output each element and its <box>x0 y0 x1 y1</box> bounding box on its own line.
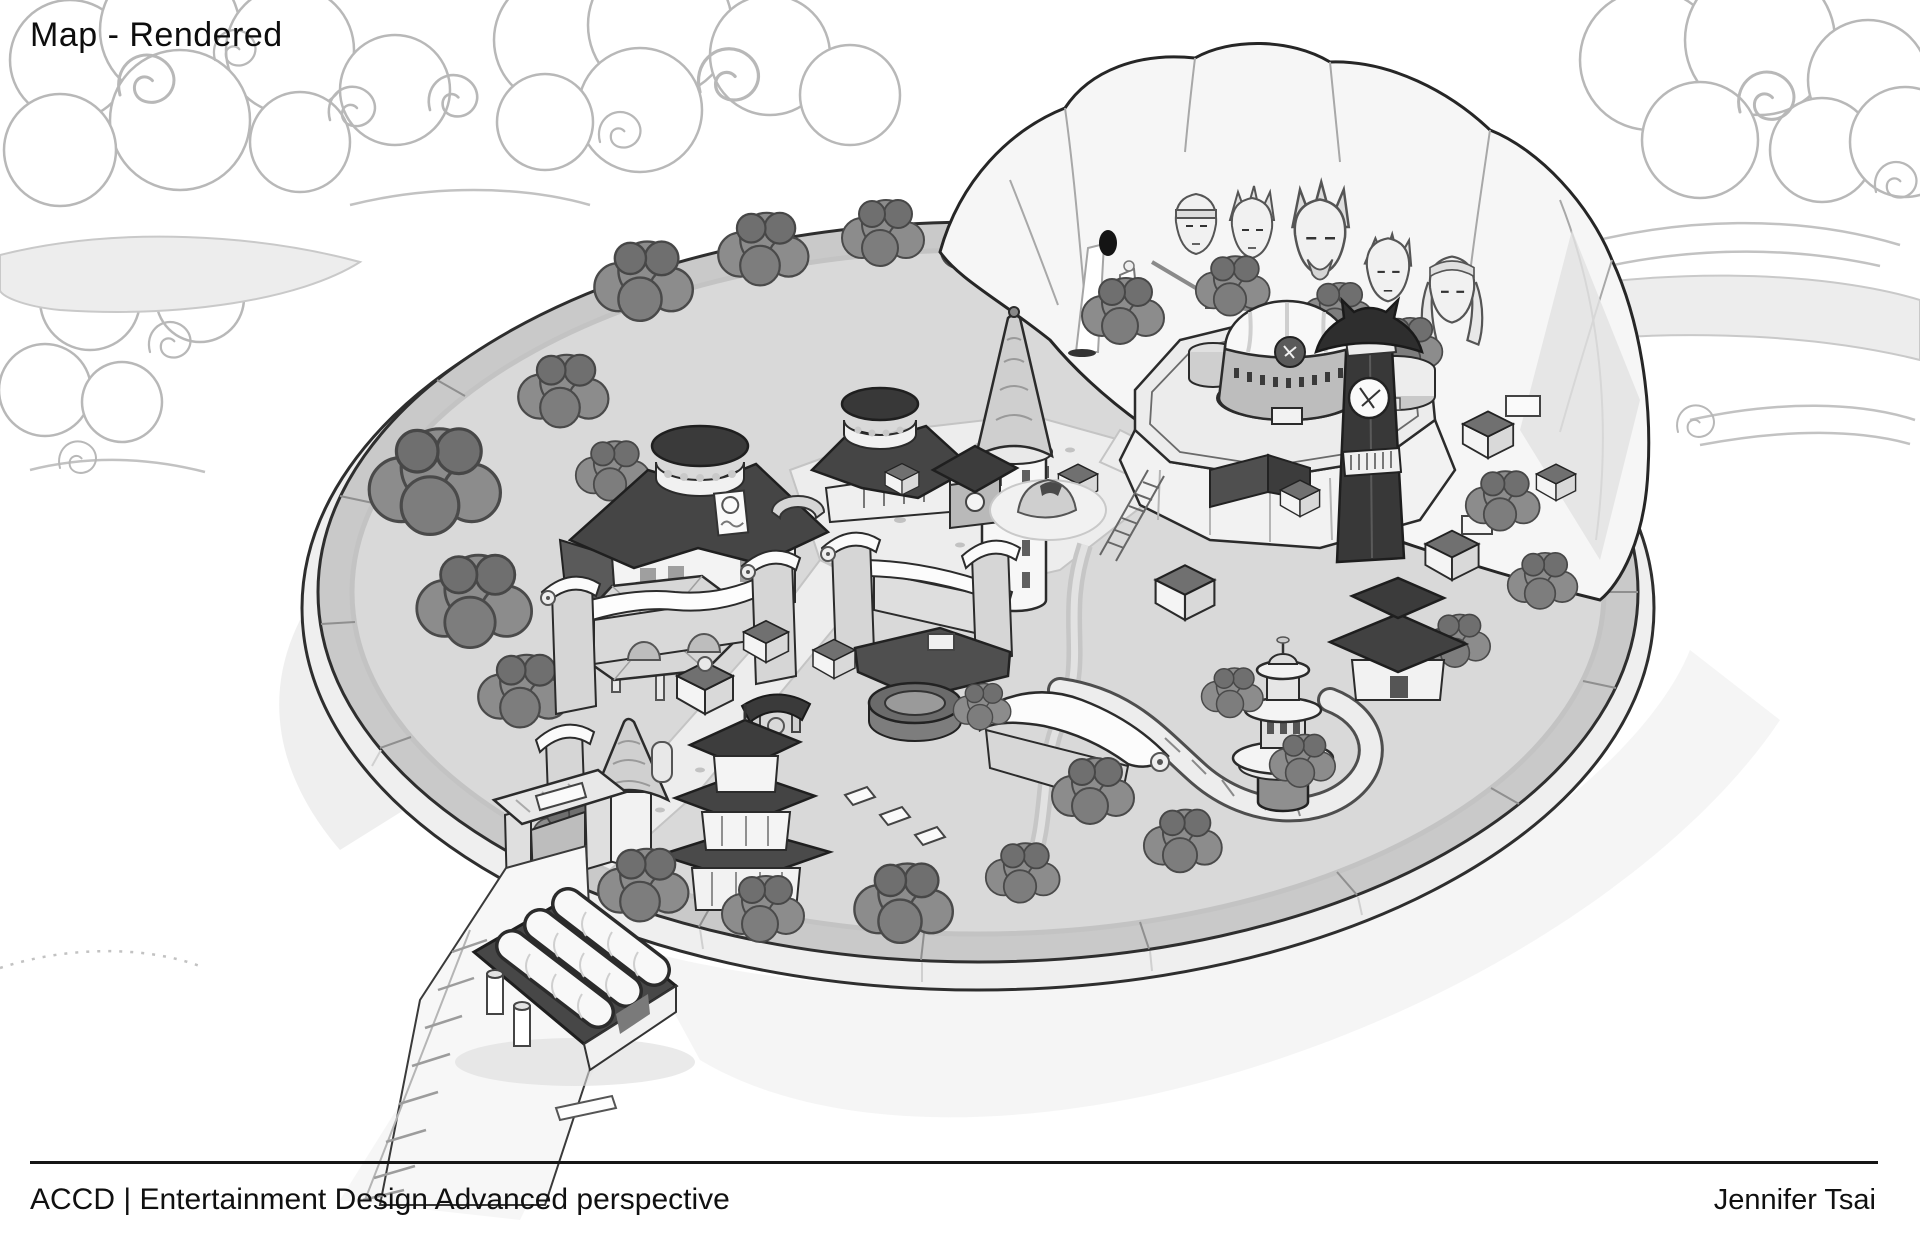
map-illustration <box>0 0 1920 1242</box>
artboard: Map - Rendered ACCD | Entertainment Desi… <box>0 0 1920 1242</box>
boat <box>1068 349 1096 357</box>
page-title: Map - Rendered <box>30 16 283 55</box>
footer-divider <box>30 1161 1878 1164</box>
cave-opening <box>1099 230 1117 256</box>
footer-artist-name: Jennifer Tsai <box>1714 1184 1876 1217</box>
signboard <box>714 491 748 536</box>
tower-clock-face <box>1349 378 1389 418</box>
footer-course-label: ACCD | Entertainment Design Advanced per… <box>30 1183 730 1217</box>
